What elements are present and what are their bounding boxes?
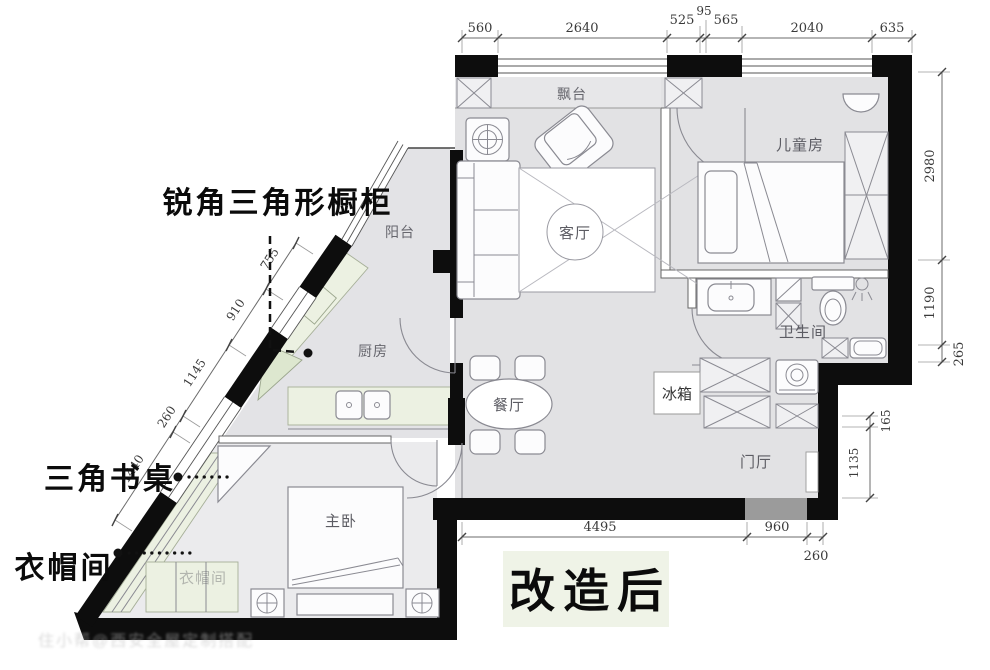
kitchen-partition-pier bbox=[448, 398, 465, 445]
right-wall bbox=[888, 55, 912, 385]
svg-text:1135: 1135 bbox=[847, 448, 861, 479]
stove-icon bbox=[776, 360, 818, 394]
bedroom-top-wall bbox=[219, 436, 391, 443]
children-wardrobe bbox=[845, 132, 888, 259]
entrance-hall-label: 门厅 bbox=[740, 454, 772, 471]
step-wall bbox=[838, 363, 912, 385]
master-bed bbox=[288, 487, 403, 588]
svg-text:2040: 2040 bbox=[790, 21, 823, 36]
svg-text:260: 260 bbox=[804, 549, 829, 564]
callout-desk: 三角书桌 bbox=[44, 463, 176, 496]
kitchen-sink bbox=[336, 391, 362, 419]
fridge-label: 冰箱 bbox=[662, 386, 692, 403]
hall-niche bbox=[806, 452, 818, 492]
bathroom-label: 卫生间 bbox=[779, 324, 827, 341]
entry-door-opening bbox=[745, 498, 807, 520]
living-room-label: 客厅 bbox=[559, 225, 591, 242]
svg-text:565: 565 bbox=[714, 13, 739, 28]
svg-text:2640: 2640 bbox=[565, 21, 598, 36]
washing-machine-icon bbox=[466, 118, 509, 161]
bed-bench bbox=[297, 594, 393, 615]
dim-top: 560 2640 525 95 565 2040 635 bbox=[458, 4, 916, 53]
svg-text:910: 910 bbox=[224, 296, 248, 323]
svg-text:265: 265 bbox=[952, 342, 967, 367]
svg-text:1190: 1190 bbox=[923, 286, 938, 319]
dim-right-upper: 2980 1190 265 bbox=[918, 68, 967, 366]
floor-plan-canvas: 飘台 儿童房 客厅 阳台 厨房 卫生间 冰箱 餐厅 门厅 主卧 衣帽间 560 … bbox=[0, 0, 990, 670]
sofa bbox=[457, 161, 520, 299]
svg-text:2980: 2980 bbox=[923, 149, 938, 182]
children-bed bbox=[698, 162, 844, 263]
title-block: 改造后 bbox=[503, 551, 671, 627]
top-window-2 bbox=[742, 55, 872, 77]
nightstand-left bbox=[251, 589, 284, 617]
balcony-label: 阳台 bbox=[385, 224, 415, 240]
svg-text:4495: 4495 bbox=[583, 520, 616, 535]
svg-text:635: 635 bbox=[880, 21, 905, 36]
kitchen-label: 厨房 bbox=[358, 343, 388, 359]
callout-desk-dot bbox=[174, 473, 183, 482]
bay-window-label: 飘台 bbox=[557, 86, 587, 102]
callout-cabinet: 锐角三角形橱柜 bbox=[163, 187, 394, 220]
children-room-label: 儿童房 bbox=[776, 136, 824, 154]
top-window-1 bbox=[498, 55, 667, 77]
living-children-wall bbox=[661, 108, 670, 270]
dining-room-label: 餐厅 bbox=[493, 397, 525, 414]
svg-text:165: 165 bbox=[879, 410, 893, 433]
hall-right-wall bbox=[818, 363, 838, 520]
svg-text:1145: 1145 bbox=[180, 356, 208, 389]
dim-right-lower: 165 1135 bbox=[842, 410, 893, 502]
svg-text:525: 525 bbox=[670, 13, 695, 28]
callout-cabinet-dot bbox=[304, 349, 313, 358]
svg-text:560: 560 bbox=[468, 21, 493, 36]
cloakroom-room-label: 衣帽间 bbox=[179, 570, 227, 587]
svg-text:95: 95 bbox=[696, 4, 711, 18]
nightstand-right bbox=[406, 589, 439, 617]
svg-text:960: 960 bbox=[765, 520, 790, 535]
master-bedroom-label: 主卧 bbox=[325, 513, 357, 530]
balcony-partition-notch bbox=[433, 250, 450, 273]
callout-cloakroom: 衣帽间 bbox=[15, 552, 114, 585]
page-title: 改造后 bbox=[509, 565, 671, 617]
watermark: 住小帮@西安全屋定制搭配 bbox=[38, 632, 254, 650]
callout-cloakroom-dot bbox=[114, 549, 123, 558]
children-bath-wall bbox=[661, 270, 888, 278]
